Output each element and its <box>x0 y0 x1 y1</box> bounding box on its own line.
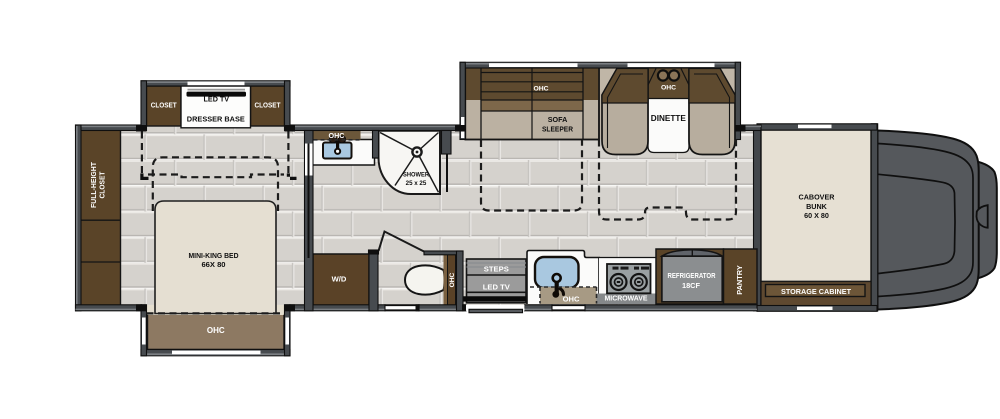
svg-text:REFRIGERATOR: REFRIGERATOR <box>668 271 717 280</box>
svg-text:CLOSET: CLOSET <box>99 171 106 199</box>
svg-text:MINI-KING BED: MINI-KING BED <box>189 251 239 260</box>
svg-text:25 x 25: 25 x 25 <box>406 180 427 187</box>
svg-text:FULL-HEIGHT: FULL-HEIGHT <box>91 161 98 208</box>
svg-text:OHC: OHC <box>449 272 456 287</box>
svg-text:OHC: OHC <box>661 85 676 92</box>
svg-text:18CF: 18CF <box>682 281 701 290</box>
svg-text:SLEEPER: SLEEPER <box>542 124 574 133</box>
svg-text:CLOSET: CLOSET <box>151 100 178 109</box>
svg-text:DRESSER BASE: DRESSER BASE <box>187 114 245 123</box>
svg-text:66X 80: 66X 80 <box>201 260 225 269</box>
svg-text:DINETTE: DINETTE <box>651 114 687 123</box>
svg-text:OHC: OHC <box>563 294 580 303</box>
svg-text:OHC: OHC <box>533 86 548 93</box>
svg-text:BUNK: BUNK <box>806 202 828 211</box>
svg-text:STORAGE CABINET: STORAGE CABINET <box>781 289 852 296</box>
svg-text:STEPS: STEPS <box>484 267 509 274</box>
svg-text:60 X 80: 60 X 80 <box>804 211 829 220</box>
svg-text:CABOVER: CABOVER <box>799 193 836 202</box>
svg-text:OHC: OHC <box>329 131 345 140</box>
svg-text:OHC: OHC <box>207 326 225 335</box>
svg-text:LED TV: LED TV <box>204 95 230 104</box>
svg-text:LED TV: LED TV <box>483 285 510 292</box>
svg-text:PANTRY: PANTRY <box>735 265 744 295</box>
svg-text:MICROWAVE: MICROWAVE <box>605 294 648 303</box>
svg-text:CLOSET: CLOSET <box>255 100 282 109</box>
svg-text:W/D: W/D <box>332 275 347 284</box>
svg-text:SOFA: SOFA <box>548 115 568 124</box>
svg-text:SHOWER: SHOWER <box>403 172 429 179</box>
